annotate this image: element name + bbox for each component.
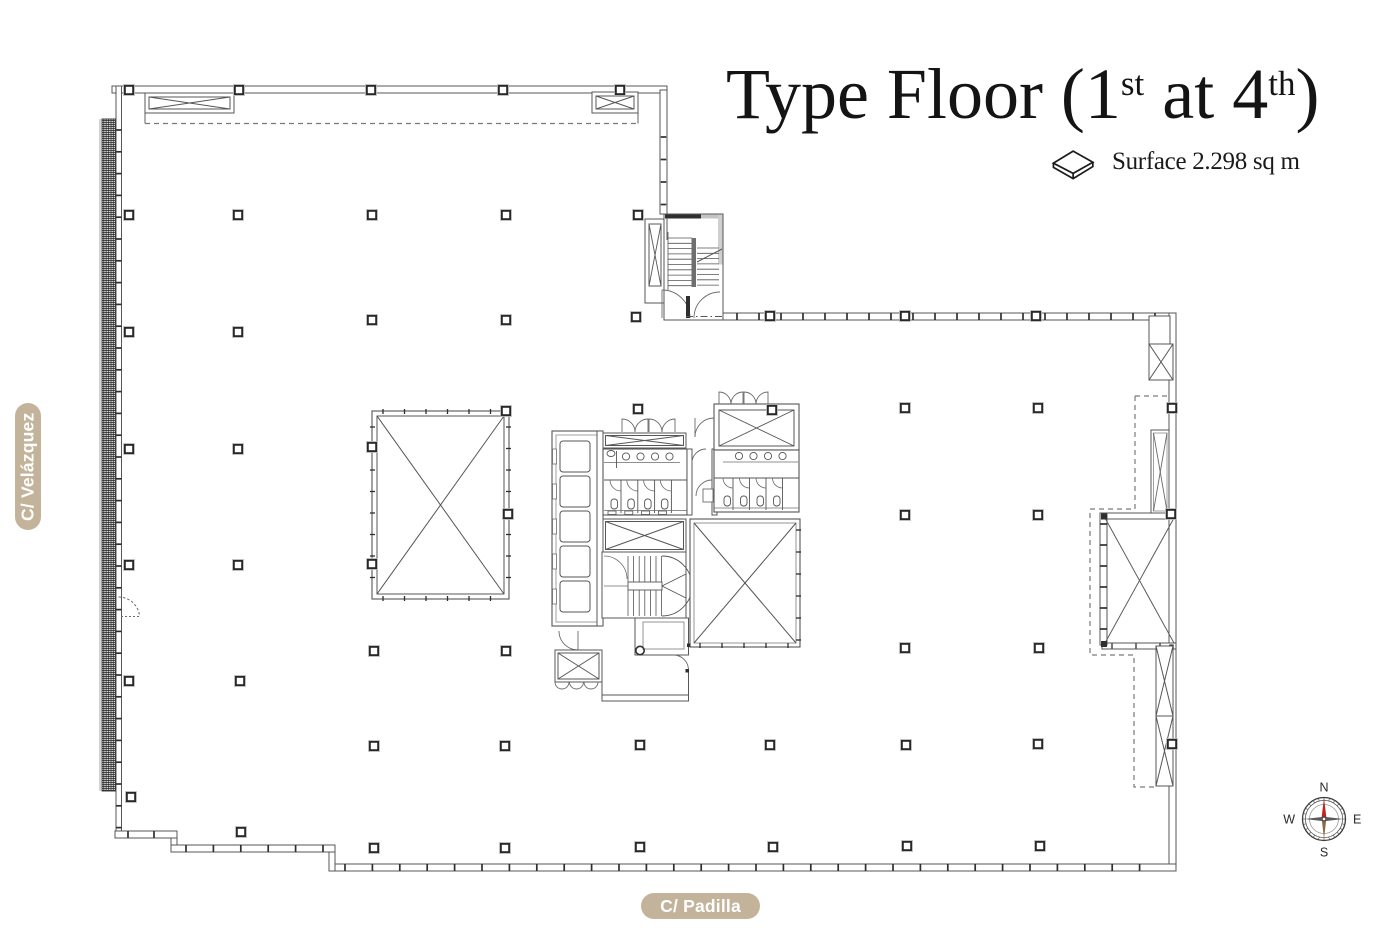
svg-text:W: W — [1283, 813, 1295, 827]
svg-text:N: N — [1319, 781, 1328, 795]
svg-text:E: E — [1353, 813, 1361, 827]
svg-text:S: S — [1320, 846, 1328, 860]
